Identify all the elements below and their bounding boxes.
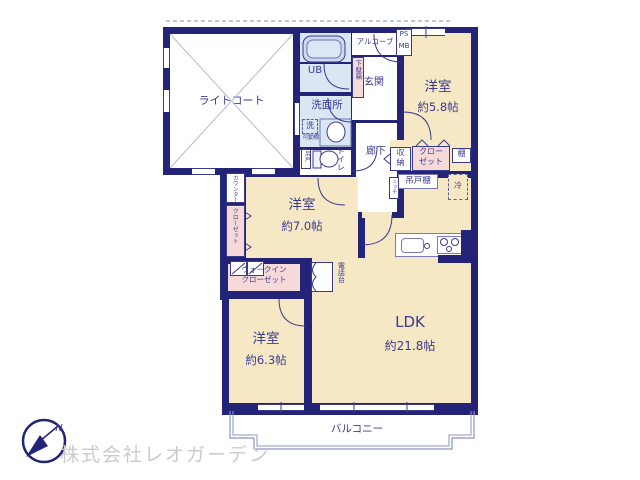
bedroom70-closet-label: クローゼット	[231, 208, 237, 244]
mb-label: MB	[397, 43, 411, 50]
kitchen-sink	[401, 238, 424, 253]
window	[258, 404, 304, 411]
closet-label-line2: ゼット	[413, 158, 449, 166]
window	[163, 90, 170, 112]
bedroom70-name: 洋室	[278, 198, 326, 212]
phone-stand-label: 電話台	[337, 262, 344, 283]
bedroom63-size: 約6.3帖	[238, 354, 294, 366]
window	[320, 404, 434, 411]
toilet-hanging-door-label: 吊戸	[303, 151, 309, 162]
ldk-floor	[404, 178, 471, 403]
unit-bath-label: UB	[302, 66, 328, 77]
bedroom70-floor	[246, 177, 358, 258]
balcony-label: バルコニー	[325, 424, 389, 435]
ldk-name: LDK	[383, 315, 437, 331]
closet-label-line1: クロー	[413, 148, 449, 156]
doorway-gap	[362, 212, 392, 218]
storage-label-bottom: 納	[391, 159, 410, 167]
window	[163, 48, 170, 68]
washer-label: 洗	[303, 122, 317, 130]
hanging-cupboard-label: 吊戸棚	[399, 177, 437, 186]
floor-plan: PS MB 下駄箱 収 納 クロー ゼット 棚 吊戸棚 冷 ニッチ 吊戸 洗 可…	[0, 0, 640, 480]
hallway-label: 廊下	[363, 147, 389, 158]
bedroom63-name: 洋室	[242, 332, 290, 346]
window	[252, 168, 275, 175]
ps-label: PS	[397, 31, 411, 38]
counter-label: カウンター	[231, 175, 237, 203]
light-court-label: ライトコート	[184, 95, 279, 107]
entrance-label: 玄関	[361, 78, 387, 89]
niche-label: ニッチ	[391, 179, 396, 194]
stove	[437, 236, 462, 254]
wic-label-line2: クローゼット	[232, 276, 296, 284]
refrigerator-label: 冷	[449, 182, 467, 190]
window	[192, 168, 215, 175]
shoe-box-label: 下駄箱	[354, 60, 361, 80]
ldk-size: 約21.8帖	[376, 340, 444, 353]
bedroom58-size: 約5.8帖	[410, 101, 466, 113]
phone-stand-box	[311, 262, 333, 292]
compass-north-label: N	[52, 424, 66, 435]
movable-shelf-label: 可動棚	[300, 136, 322, 142]
wall-thin	[300, 62, 351, 64]
toilet-label: トイレ	[336, 147, 344, 171]
bedroom63-floor	[229, 299, 304, 403]
kitchen-wall	[438, 255, 472, 263]
wic-label-line1: ウォークイン	[232, 266, 296, 274]
company-watermark: 株式会社レオガーデン	[60, 440, 270, 467]
alcove-label: アルコーブ	[352, 38, 398, 46]
shelf-label: 棚	[453, 150, 470, 158]
bedroom70-size: 約7.0帖	[274, 220, 330, 232]
storage-label-top: 収	[391, 149, 410, 157]
bedroom58-name: 洋室	[414, 80, 462, 94]
window	[294, 103, 300, 135]
compass-needle	[26, 435, 48, 457]
washroom-label: 洗面所	[304, 100, 350, 111]
